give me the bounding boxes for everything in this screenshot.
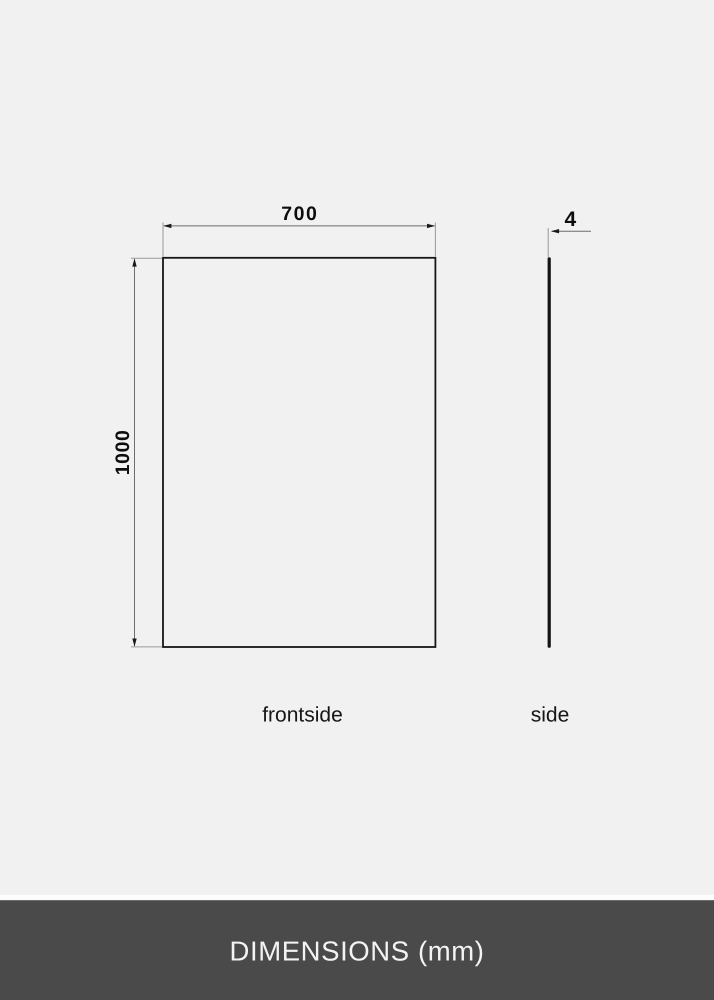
svg-text:side: side	[531, 704, 570, 727]
svg-text:DIMENSIONS (mm): DIMENSIONS (mm)	[230, 936, 485, 967]
svg-text:700: 700	[281, 203, 318, 225]
svg-text:frontside: frontside	[262, 704, 343, 727]
svg-text:1000: 1000	[112, 430, 134, 476]
svg-text:4: 4	[564, 208, 576, 231]
